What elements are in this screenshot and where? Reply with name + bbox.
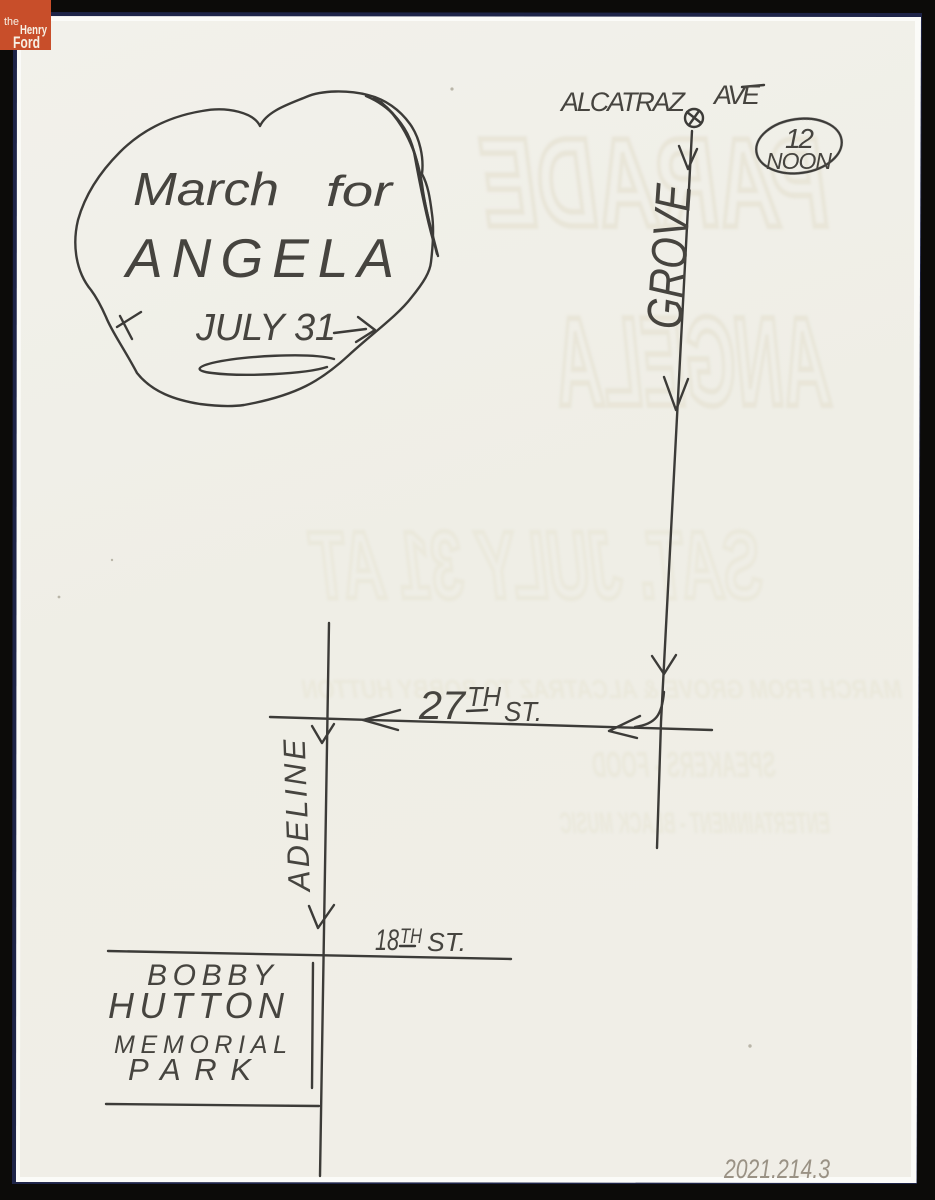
svg-text:27: 27 <box>418 684 467 728</box>
svg-text:TH: TH <box>467 681 502 712</box>
svg-text:for: for <box>326 167 395 216</box>
svg-text:18: 18 <box>375 924 399 957</box>
svg-text:MARCH FROM GROVE & ALCATRAZ TO: MARCH FROM GROVE & ALCATRAZ TO BOBBY HUT… <box>301 674 902 704</box>
svg-text:ST.: ST. <box>427 927 466 957</box>
svg-text:Ford: Ford <box>13 33 40 52</box>
svg-text:SAT. JULY 31 AT: SAT. JULY 31 AT <box>308 512 762 619</box>
svg-text:ALCATRAZ: ALCATRAZ <box>559 87 687 117</box>
svg-text:GROVE: GROVE <box>636 182 702 331</box>
svg-text:JULY 31: JULY 31 <box>195 307 336 349</box>
svg-text:March: March <box>133 163 279 215</box>
svg-text:NOON: NOON <box>766 148 832 174</box>
svg-text:ENTERTAINMENT - BLACK MUSIC: ENTERTAINMENT - BLACK MUSIC <box>559 807 830 840</box>
svg-text:SPEAKERS - FOOD: SPEAKERS - FOOD <box>592 744 776 785</box>
svg-text:AVE: AVE <box>712 80 761 110</box>
svg-text:ANGELA: ANGELA <box>556 291 832 432</box>
svg-text:ST.: ST. <box>504 696 542 727</box>
svg-text:the: the <box>4 16 19 28</box>
svg-text:2021.214.3: 2021.214.3 <box>723 1154 830 1184</box>
svg-text:TH: TH <box>400 925 423 948</box>
